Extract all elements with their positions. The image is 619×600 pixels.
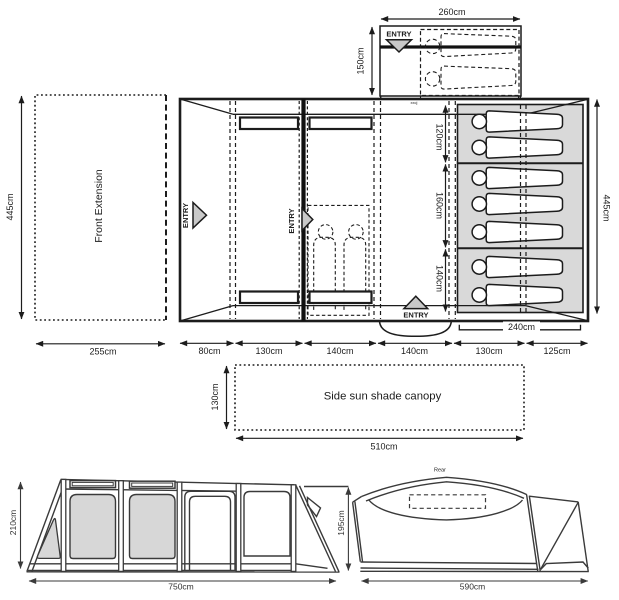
svg-text:150cm: 150cm [356, 47, 366, 74]
svg-text:510cm: 510cm [370, 442, 397, 452]
svg-text:140cm: 140cm [326, 346, 353, 356]
svg-text:Side sun shade canopy: Side sun shade canopy [324, 391, 442, 403]
svg-text:ENTRY: ENTRY [386, 30, 411, 39]
svg-text:ENTRY: ENTRY [287, 208, 296, 233]
svg-text:130cm: 130cm [475, 346, 502, 356]
svg-text:140cm: 140cm [435, 265, 445, 292]
svg-text:140cm: 140cm [401, 346, 428, 356]
svg-text:590cm: 590cm [460, 582, 486, 592]
svg-text:255cm: 255cm [89, 347, 116, 357]
svg-text:120cm: 120cm [435, 123, 445, 150]
svg-text:260cm: 260cm [438, 7, 465, 17]
svg-text:195cm: 195cm [336, 510, 346, 536]
svg-text:445cm: 445cm [602, 194, 612, 221]
svg-text:ENTRY: ENTRY [181, 203, 190, 228]
svg-text:210cm: 210cm [8, 510, 18, 536]
svg-text:xxcj: xxcj [411, 100, 418, 105]
svg-text:ENTRY: ENTRY [403, 311, 428, 320]
svg-text:240cm: 240cm [508, 322, 535, 332]
svg-text:130cm: 130cm [255, 346, 282, 356]
svg-text:Rear: Rear [434, 468, 446, 474]
svg-text:445cm: 445cm [5, 193, 15, 220]
svg-text:160cm: 160cm [435, 192, 445, 219]
svg-text:Front Extension: Front Extension [93, 169, 105, 243]
svg-text:750cm: 750cm [168, 582, 194, 592]
svg-text:125cm: 125cm [543, 346, 570, 356]
svg-text:130cm: 130cm [210, 383, 220, 410]
svg-text:80cm: 80cm [198, 346, 220, 356]
